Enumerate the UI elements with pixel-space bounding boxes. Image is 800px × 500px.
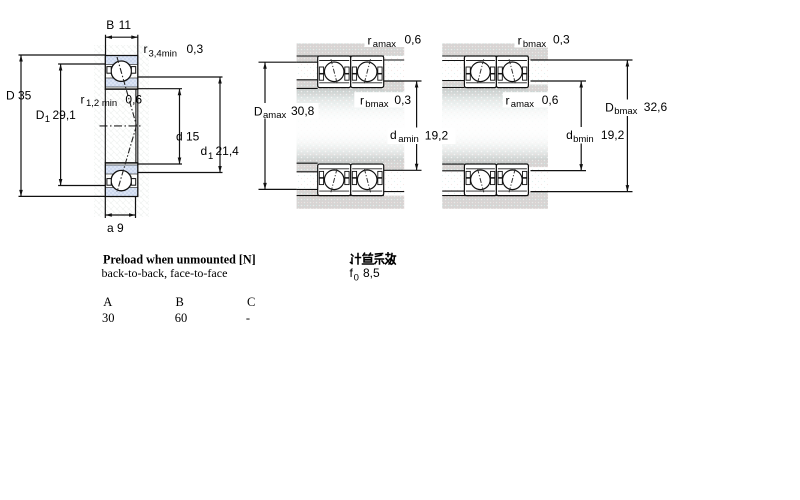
svg-text:a 9: a 9 [107,221,124,235]
svg-text:B: B [106,18,114,32]
svg-text:bmax: bmax [523,39,546,50]
svg-text:amax: amax [263,110,286,121]
svg-text:r: r [368,33,372,47]
svg-text:r: r [144,42,148,56]
svg-text:30,8: 30,8 [291,104,315,118]
svg-text:0,3: 0,3 [187,42,204,56]
svg-text:11: 11 [119,18,132,32]
svg-text:0,6: 0,6 [405,33,422,47]
svg-text:29,1: 29,1 [53,108,77,122]
svg-text:30: 30 [102,311,115,325]
svg-text:back-to-back, face-to-face: back-to-back, face-to-face [102,266,228,280]
svg-text:0,3: 0,3 [394,93,411,107]
svg-text:d: d [566,128,573,142]
svg-text:D 35: D 35 [6,89,32,103]
svg-text:A: A [103,295,112,309]
svg-text:D: D [254,105,263,119]
svg-text:bmin: bmin [573,134,594,145]
svg-text:0: 0 [354,272,359,283]
svg-text:r: r [518,33,522,47]
svg-text:bmax: bmax [614,106,637,117]
svg-text:D: D [36,108,45,122]
svg-text:r: r [360,94,364,108]
svg-text:Preload when unmounted [N]: Preload when unmounted [N] [103,253,256,267]
svg-text:60: 60 [175,311,188,325]
svg-text:21,4: 21,4 [216,144,240,158]
svg-text:d 15: d 15 [176,129,200,143]
svg-text:0,3: 0,3 [553,33,570,47]
svg-text:amax: amax [373,39,396,50]
svg-text:r: r [506,94,510,108]
svg-text:1: 1 [45,114,50,125]
svg-text:-: - [246,311,250,325]
svg-text:amin: amin [398,134,419,145]
svg-text:amax: amax [511,99,534,110]
svg-text:1,2 min: 1,2 min [86,98,117,109]
svg-text:1: 1 [208,151,213,162]
svg-text:bmax: bmax [365,99,388,110]
svg-text:r: r [81,93,85,107]
svg-text:d: d [390,128,397,142]
svg-text:0,6: 0,6 [542,93,559,107]
svg-text:0,6: 0,6 [125,93,142,107]
svg-text:3,4min: 3,4min [149,49,178,60]
svg-text:C: C [247,295,255,309]
svg-text:19,2: 19,2 [601,128,625,142]
svg-text:D: D [605,100,614,114]
svg-text:32,6: 32,6 [644,100,668,114]
svg-text:B: B [176,295,184,309]
svg-text:d: d [201,144,208,158]
svg-text:8,5: 8,5 [363,266,380,280]
svg-text:19,2: 19,2 [425,129,449,143]
